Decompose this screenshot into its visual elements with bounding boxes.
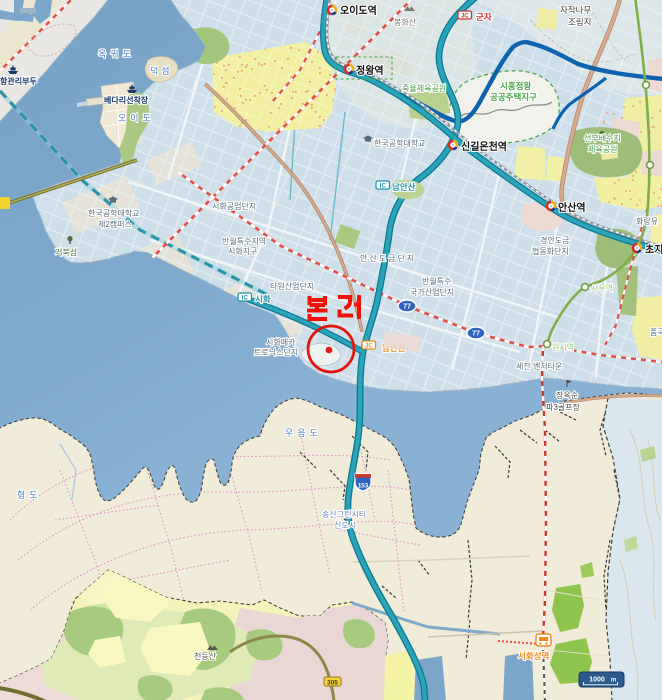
svg-text:오이도역: 오이도역 (340, 4, 377, 17)
svg-text:IC: IC (242, 295, 249, 301)
svg-text:장옥순: 장옥순 (556, 390, 578, 400)
svg-text:안산도금단지: 안산도금단지 (360, 253, 416, 263)
svg-text:정왕역: 정왕역 (356, 64, 384, 77)
svg-text:반월특수: 반월특수 (422, 276, 451, 286)
svg-text:신도시: 신도시 (334, 521, 356, 530)
svg-text:공공주택지구: 공공주택지구 (490, 92, 537, 102)
svg-text:JC: JC (365, 343, 373, 349)
svg-text:국가산업단지: 국가산업단지 (410, 287, 454, 297)
svg-text:선부배수지: 선부배수지 (584, 134, 621, 143)
svg-text:덕섬: 덕섬 (150, 66, 173, 76)
svg-text:품곡: 품곡 (650, 328, 662, 337)
svg-text:반월특수지역: 반월특수지역 (222, 236, 266, 246)
svg-text:우음도: 우음도 (285, 428, 322, 438)
svg-text:항관리부두: 항관리부두 (0, 76, 37, 86)
svg-text:죽율체육공원: 죽율체육공원 (402, 83, 446, 93)
svg-text:협동화단지: 협동화단지 (532, 246, 569, 256)
svg-text:베다리선착장: 베다리선착장 (104, 95, 149, 105)
svg-text:신길온천역: 신길온천역 (461, 140, 507, 153)
svg-text:한국공학대학교: 한국공학대학교 (88, 208, 140, 218)
svg-text:IC: IC (380, 183, 387, 189)
svg-text:시화메카: 시화메카 (266, 338, 296, 347)
svg-text:한국공학대학교: 한국공학대학교 (374, 138, 426, 148)
svg-text:m: m (611, 678, 616, 684)
svg-text:옥귀도: 옥귀도 (98, 49, 135, 59)
svg-text:시화공업단지: 시화공업단지 (212, 201, 256, 211)
svg-text:타원산업단지: 타원산업단지 (270, 281, 314, 291)
svg-text:1000: 1000 (589, 677, 605, 684)
svg-text:조림지: 조림지 (568, 17, 591, 27)
svg-text:초지역: 초지역 (645, 243, 662, 256)
svg-text:봉화산: 봉화산 (394, 17, 417, 27)
svg-text:군자: 군자 (476, 12, 492, 22)
svg-text:시화지구: 시화지구 (228, 247, 257, 256)
svg-text:안산역: 안산역 (558, 201, 586, 214)
svg-text:송산그린시티: 송산그린시티 (322, 509, 366, 519)
svg-text:자작나무: 자작나무 (560, 5, 591, 15)
svg-text:305: 305 (327, 679, 338, 686)
svg-text:JC: JC (461, 13, 469, 19)
svg-text:153: 153 (358, 483, 369, 490)
svg-text:경안도금: 경안도금 (540, 235, 569, 245)
svg-text:오이도: 오이도 (118, 113, 155, 123)
svg-text:파3골프장: 파3골프장 (546, 402, 581, 412)
svg-text:천등산: 천등산 (194, 651, 217, 661)
svg-text:시화: 시화 (255, 294, 271, 304)
svg-text:제2캠퍼스: 제2캠퍼스 (98, 219, 132, 229)
svg-text:시우역: 시우역 (591, 283, 613, 293)
svg-text:트로닉스단지: 트로닉스단지 (254, 347, 298, 357)
svg-text:서화성역: 서화성역 (518, 651, 549, 661)
svg-text:체육공원: 체육공원 (588, 144, 617, 154)
svg-text:77: 77 (472, 331, 480, 338)
svg-text:남안산: 남안산 (392, 182, 416, 192)
svg-text:거북섬: 거북섬 (55, 247, 77, 257)
svg-text:77: 77 (403, 304, 411, 311)
svg-text:원시역: 원시역 (552, 342, 574, 352)
svg-text:세잔 벤처타운: 세잔 벤처타운 (516, 361, 562, 371)
svg-text:형도: 형도 (17, 490, 42, 500)
svg-text:시흥정왕: 시흥정왕 (500, 81, 531, 91)
svg-text:화랑유: 화랑유 (636, 216, 658, 226)
